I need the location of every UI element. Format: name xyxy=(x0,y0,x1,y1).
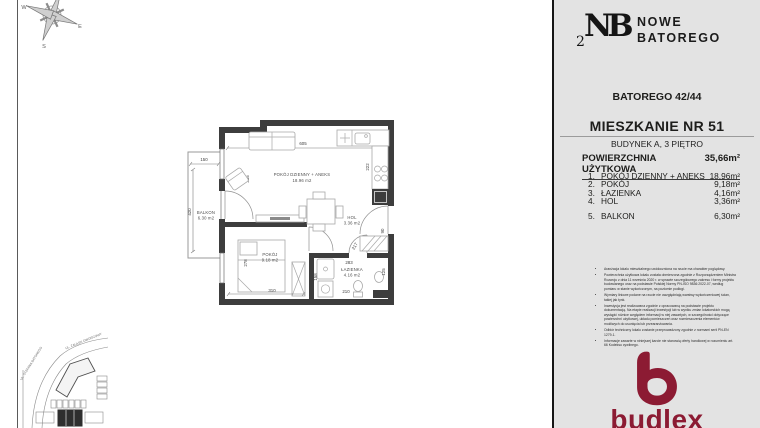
compass-south-label: S xyxy=(42,44,46,50)
bedroom-area: 9.18 m2 xyxy=(262,258,279,263)
apartment-card-page: W E S UL. ZAUŁEK DWORCOWY UL. STEFANA xyxy=(0,0,760,428)
budlex-wordmark: budlex xyxy=(554,406,760,428)
shower xyxy=(317,259,334,279)
street-left-label: UL. STEFANA BATOREGO xyxy=(19,346,43,382)
window-room xyxy=(220,253,224,283)
dim-bath-right: 125 xyxy=(381,268,386,276)
sidebar: NB 2 NOWE BATOREGO BATOREGO 42/44 MIESZK… xyxy=(554,0,760,428)
window-living xyxy=(220,149,224,179)
disclaimer-item: Informacje zawarte w niniejszej karcie n… xyxy=(604,339,736,348)
shaft xyxy=(373,290,388,298)
tv xyxy=(270,217,290,220)
balcony: 150 420 BALKON 6.30 m2 xyxy=(187,152,221,258)
dim-bedroom-width: 310 xyxy=(268,288,276,293)
room-number: 4. xyxy=(588,197,601,205)
room-name: BALKON xyxy=(601,212,714,220)
toilet-tank xyxy=(354,292,363,297)
compass-west-label: W xyxy=(21,5,27,11)
bathroom-label: ŁAZIENKA xyxy=(341,267,363,272)
living-area: 18.96 m2 xyxy=(292,178,312,183)
brand-line1: NOWE xyxy=(637,15,721,31)
living-label: POKÓJ DZIENNY + ANEKS xyxy=(274,172,331,177)
legal-disclaimers: Aranżacja lokalu mieszkalnego uwidocznio… xyxy=(598,267,736,350)
dim-bath-top: 283 xyxy=(345,260,353,265)
armchair xyxy=(225,167,249,190)
room-name: HOL xyxy=(601,197,714,205)
nb-monogram-icon: NB 2 xyxy=(576,10,628,52)
chair xyxy=(336,206,343,218)
hall-area: 3.36 m2 xyxy=(344,221,361,226)
brand-line2: BATOREGO xyxy=(637,31,721,47)
room-bathroom: ŁAZIENKA 4.16 m2 283 158 125 210 xyxy=(313,259,388,298)
room-bedroom: POKÓJ 9.18 m2 278 310 xyxy=(227,240,305,296)
title-divider xyxy=(560,136,754,137)
apartment-title: MIESZKANIE NR 51 xyxy=(554,118,760,134)
balcony-area: 6.30 m2 xyxy=(198,216,215,221)
room-area: 6,30m² xyxy=(714,212,740,220)
site-building-highlight xyxy=(58,410,82,426)
chair xyxy=(313,192,325,199)
developer-logo: NB 2 NOWE BATOREGO xyxy=(576,10,721,52)
room-area: 3,36m² xyxy=(714,197,740,205)
dim-balcony-height: 420 xyxy=(187,208,192,216)
disclaimer-item: Wymiary liniowe podane na rzucie nie uwz… xyxy=(604,293,736,302)
site-plan: UL. ZAUŁEK DWORCOWY UL. STEFANA BATOREGO xyxy=(19,332,108,428)
dim-kitchen-side: 222 xyxy=(365,163,370,171)
dim-balcony-width: 150 xyxy=(200,157,208,162)
disclaimer-item: Inwestycja jest realizowana zgodnie z op… xyxy=(604,304,736,327)
compass-rose-icon: W E S xyxy=(21,0,82,50)
budlex-logo-icon xyxy=(629,349,685,407)
monogram-letters: NB xyxy=(584,8,629,44)
dim-bath-left: 158 xyxy=(313,273,318,281)
street-top-label: UL. ZAUŁEK DWORCOWY xyxy=(65,332,104,351)
room-list-item: 5. BALKON 6,30m² xyxy=(588,212,740,220)
building-address: BATOREGO 42/44 xyxy=(554,91,760,103)
room-list-item: 4. HOL 3,36m² xyxy=(588,197,740,205)
room-living: 605 335 222 xyxy=(225,130,389,231)
bathroom-area: 4.16 m2 xyxy=(344,273,361,278)
apartment-subtitle: BUDYNEK A, 3 PIĘTRO xyxy=(554,139,760,149)
disclaimer-item: Aranżacja lokalu mieszkalnego uwidocznio… xyxy=(604,267,736,272)
hall-label: HOL xyxy=(347,215,357,220)
chair xyxy=(299,206,306,218)
compass-east-label: E xyxy=(78,24,82,30)
washing-machine xyxy=(318,281,333,297)
dim-living-width: 605 xyxy=(299,141,307,146)
dim-entry-side: 90 xyxy=(380,228,385,233)
balcony-label: BALKON xyxy=(197,210,215,215)
chair xyxy=(313,224,325,231)
floor-plan-canvas: W E S UL. ZAUŁEK DWORCOWY UL. STEFANA xyxy=(0,0,556,428)
kitchen-sink xyxy=(355,133,370,144)
room-number: 5. xyxy=(588,212,601,220)
disclaimer-item: Odbiór techniczny lokalu zostanie przepr… xyxy=(604,328,736,337)
dining-table xyxy=(307,199,335,224)
brand-name: NOWE BATOREGO xyxy=(637,15,721,46)
pillow xyxy=(240,242,257,255)
dim-bedroom-height: 278 xyxy=(243,259,248,267)
monogram-digit: 2 xyxy=(576,34,585,50)
balcony-door-arc xyxy=(225,191,253,219)
room-list: 1. POKÓJ DZIENNY + ANEKS 18,96m² 2. POKÓ… xyxy=(588,172,740,220)
site-building-outline xyxy=(56,358,95,397)
disclaimer-item: Powierzchnia użytkowa lokalu została obm… xyxy=(604,273,736,291)
toilet xyxy=(354,281,363,292)
dim-bath-width: 210 xyxy=(342,289,350,294)
bedroom-label: POKÓJ xyxy=(262,252,277,257)
